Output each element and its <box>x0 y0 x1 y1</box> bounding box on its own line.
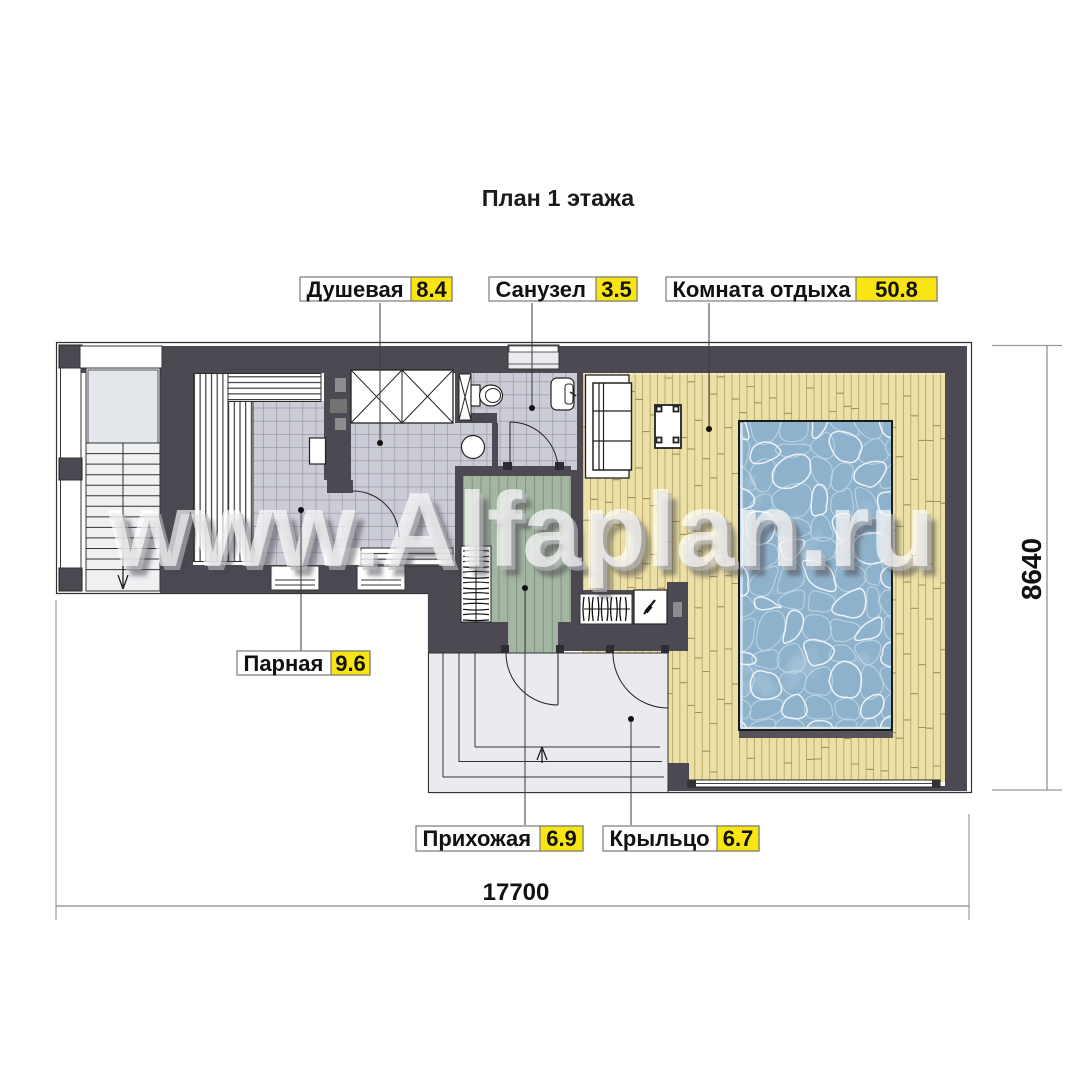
svg-text:9.6: 9.6 <box>335 651 366 676</box>
svg-text:Комната отдыха: Комната отдыха <box>673 277 852 302</box>
svg-text:Санузел: Санузел <box>496 277 586 302</box>
svg-text:6.9: 6.9 <box>546 826 577 851</box>
svg-text:Крыльцо: Крыльцо <box>610 826 710 851</box>
svg-text:8640: 8640 <box>1016 538 1047 600</box>
svg-text:План 1 этажа: План 1 этажа <box>482 185 635 211</box>
svg-text:Душевая: Душевая <box>307 277 404 302</box>
svg-text:50.8: 50.8 <box>875 277 918 302</box>
svg-text:6.7: 6.7 <box>723 826 754 851</box>
svg-text:3.5: 3.5 <box>601 277 632 302</box>
svg-text:Прихожая: Прихожая <box>423 826 532 851</box>
svg-text:Парная: Парная <box>244 651 324 676</box>
svg-text:www.Alfaplan.ru: www.Alfaplan.ru <box>107 471 934 589</box>
svg-text:17700: 17700 <box>483 879 550 906</box>
svg-text:8.4: 8.4 <box>416 277 447 302</box>
